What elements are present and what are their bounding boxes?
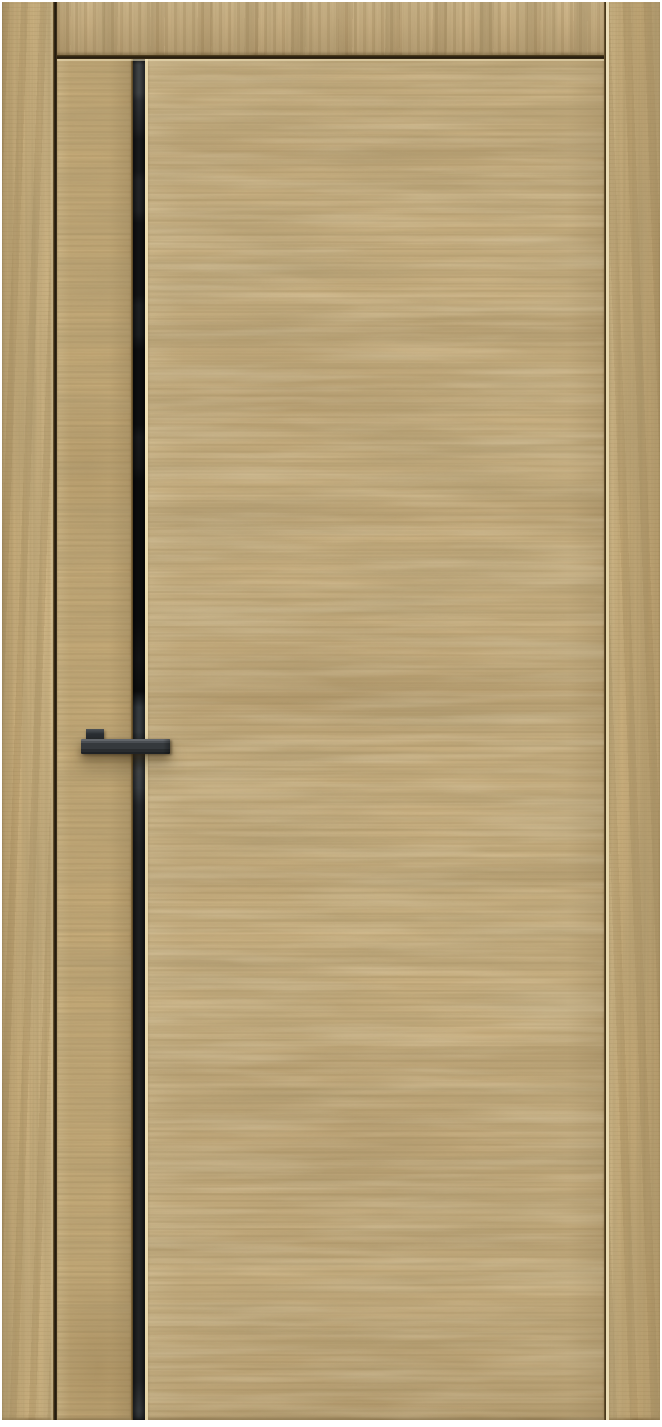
frame-jamb-right — [609, 2, 660, 1420]
door-leaf — [57, 59, 604, 1420]
frame-header — [57, 2, 604, 55]
door-top-bevel-highlight — [57, 59, 604, 61]
wood-grain-texture — [2, 2, 53, 1420]
door-handle — [81, 739, 170, 754]
frame-jamb-left — [2, 2, 53, 1420]
door-handle-endcap — [163, 739, 170, 754]
wood-grain-texture — [148, 59, 604, 1420]
wood-grain-texture — [609, 2, 660, 1420]
door-panel-main — [148, 59, 604, 1420]
door-product-photo — [0, 0, 662, 1427]
frame-gap-right-highlight — [606, 2, 609, 1420]
wood-grain-texture — [57, 2, 604, 55]
